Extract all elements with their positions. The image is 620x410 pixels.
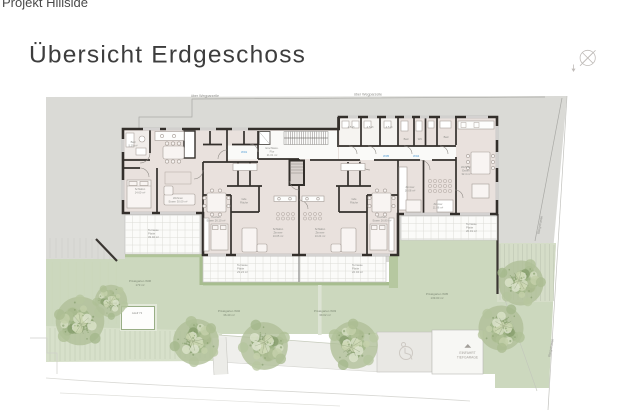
- svg-text:Zimmer: Zimmer: [315, 231, 324, 235]
- svg-text:4.5 Zi: 4.5 Zi: [348, 125, 355, 129]
- svg-text:173 m²: 173 m²: [136, 283, 145, 287]
- svg-text:Essen: Essen: [462, 169, 470, 173]
- svg-text:über Wegparzelle: über Wegparzelle: [354, 93, 382, 97]
- svg-text:W04: W04: [413, 154, 420, 158]
- svg-text:4.5 Zi: 4.5 Zi: [367, 125, 374, 129]
- svg-text:Projekt Hillside: Projekt Hillside: [2, 0, 88, 10]
- svg-text:Bad: Bad: [444, 135, 449, 139]
- svg-text:Wohnen: Wohnen: [173, 196, 183, 200]
- svg-text:13.24 m²: 13.24 m²: [315, 234, 326, 238]
- svg-text:EINFAHRT: EINFAHRT: [459, 351, 475, 355]
- svg-text:Fläche: Fläche: [350, 201, 359, 205]
- svg-text:Kochen: Kochen: [211, 215, 221, 219]
- svg-text:39.02 m²: 39.02 m²: [319, 313, 330, 317]
- svg-text:22.04 m²: 22.04 m²: [352, 270, 363, 274]
- svg-text:Gde: Gde: [241, 197, 247, 201]
- svg-text:WC: WC: [418, 137, 423, 141]
- svg-text:Kochen: Kochen: [377, 215, 387, 219]
- svg-text:Bad: Bad: [404, 137, 409, 141]
- svg-text:Essen 26.80 m²: Essen 26.80 m²: [373, 219, 392, 223]
- svg-text:über Wegparzelle: über Wegparzelle: [191, 94, 219, 98]
- svg-text:33.02 m²: 33.02 m²: [148, 235, 159, 239]
- svg-text:139.00 m²: 139.00 m²: [430, 296, 443, 300]
- svg-text:Flur: Flur: [270, 150, 275, 154]
- svg-text:W01: W01: [241, 150, 248, 154]
- svg-text:4.5 Zi: 4.5 Zi: [386, 125, 393, 129]
- svg-text:11.06 m²: 11.06 m²: [433, 206, 444, 210]
- svg-text:5.29 m²: 5.29 m²: [128, 144, 137, 148]
- svg-text:Gde: Gde: [351, 197, 357, 201]
- svg-text:13.05 m²: 13.05 m²: [273, 234, 284, 238]
- svg-text:Wohnen: Wohnen: [461, 165, 471, 169]
- svg-text:W05: W05: [383, 154, 390, 158]
- svg-text:23.24 m²: 23.24 m²: [237, 270, 248, 274]
- svg-text:Bad: Bad: [131, 140, 136, 144]
- svg-text:Adolf 73: Adolf 73: [132, 311, 143, 315]
- svg-text:21.01 m²: 21.01 m²: [267, 153, 278, 157]
- svg-text:Übersicht Erdgeschoss: Übersicht Erdgeschoss: [29, 42, 306, 69]
- svg-text:Fläche: Fläche: [240, 201, 249, 205]
- svg-text:Schlafen: Schlafen: [135, 187, 146, 191]
- svg-text:32.4 m²: 32.4 m²: [461, 172, 470, 176]
- svg-text:Zimmer: Zimmer: [273, 231, 282, 235]
- svg-text:20.01 m²: 20.01 m²: [466, 229, 477, 233]
- svg-text:Schlafen: Schlafen: [315, 227, 326, 231]
- svg-text:Erschliess.: Erschliess.: [266, 146, 279, 150]
- svg-text:Zimmer: Zimmer: [405, 185, 414, 189]
- svg-text:10.08 m²: 10.08 m²: [405, 189, 416, 193]
- svg-text:Schlafen: Schlafen: [273, 227, 284, 231]
- svg-text:Essen 26.10 m²: Essen 26.10 m²: [207, 219, 226, 223]
- svg-text:TIEFGARAGE: TIEFGARAGE: [457, 356, 479, 360]
- svg-text:Zimmer: Zimmer: [433, 202, 442, 206]
- svg-text:36.40 m²: 36.40 m²: [223, 313, 234, 317]
- svg-text:14.60 m²: 14.60 m²: [135, 191, 146, 195]
- svg-text:Essen 30.09 m²: Essen 30.09 m²: [169, 200, 188, 204]
